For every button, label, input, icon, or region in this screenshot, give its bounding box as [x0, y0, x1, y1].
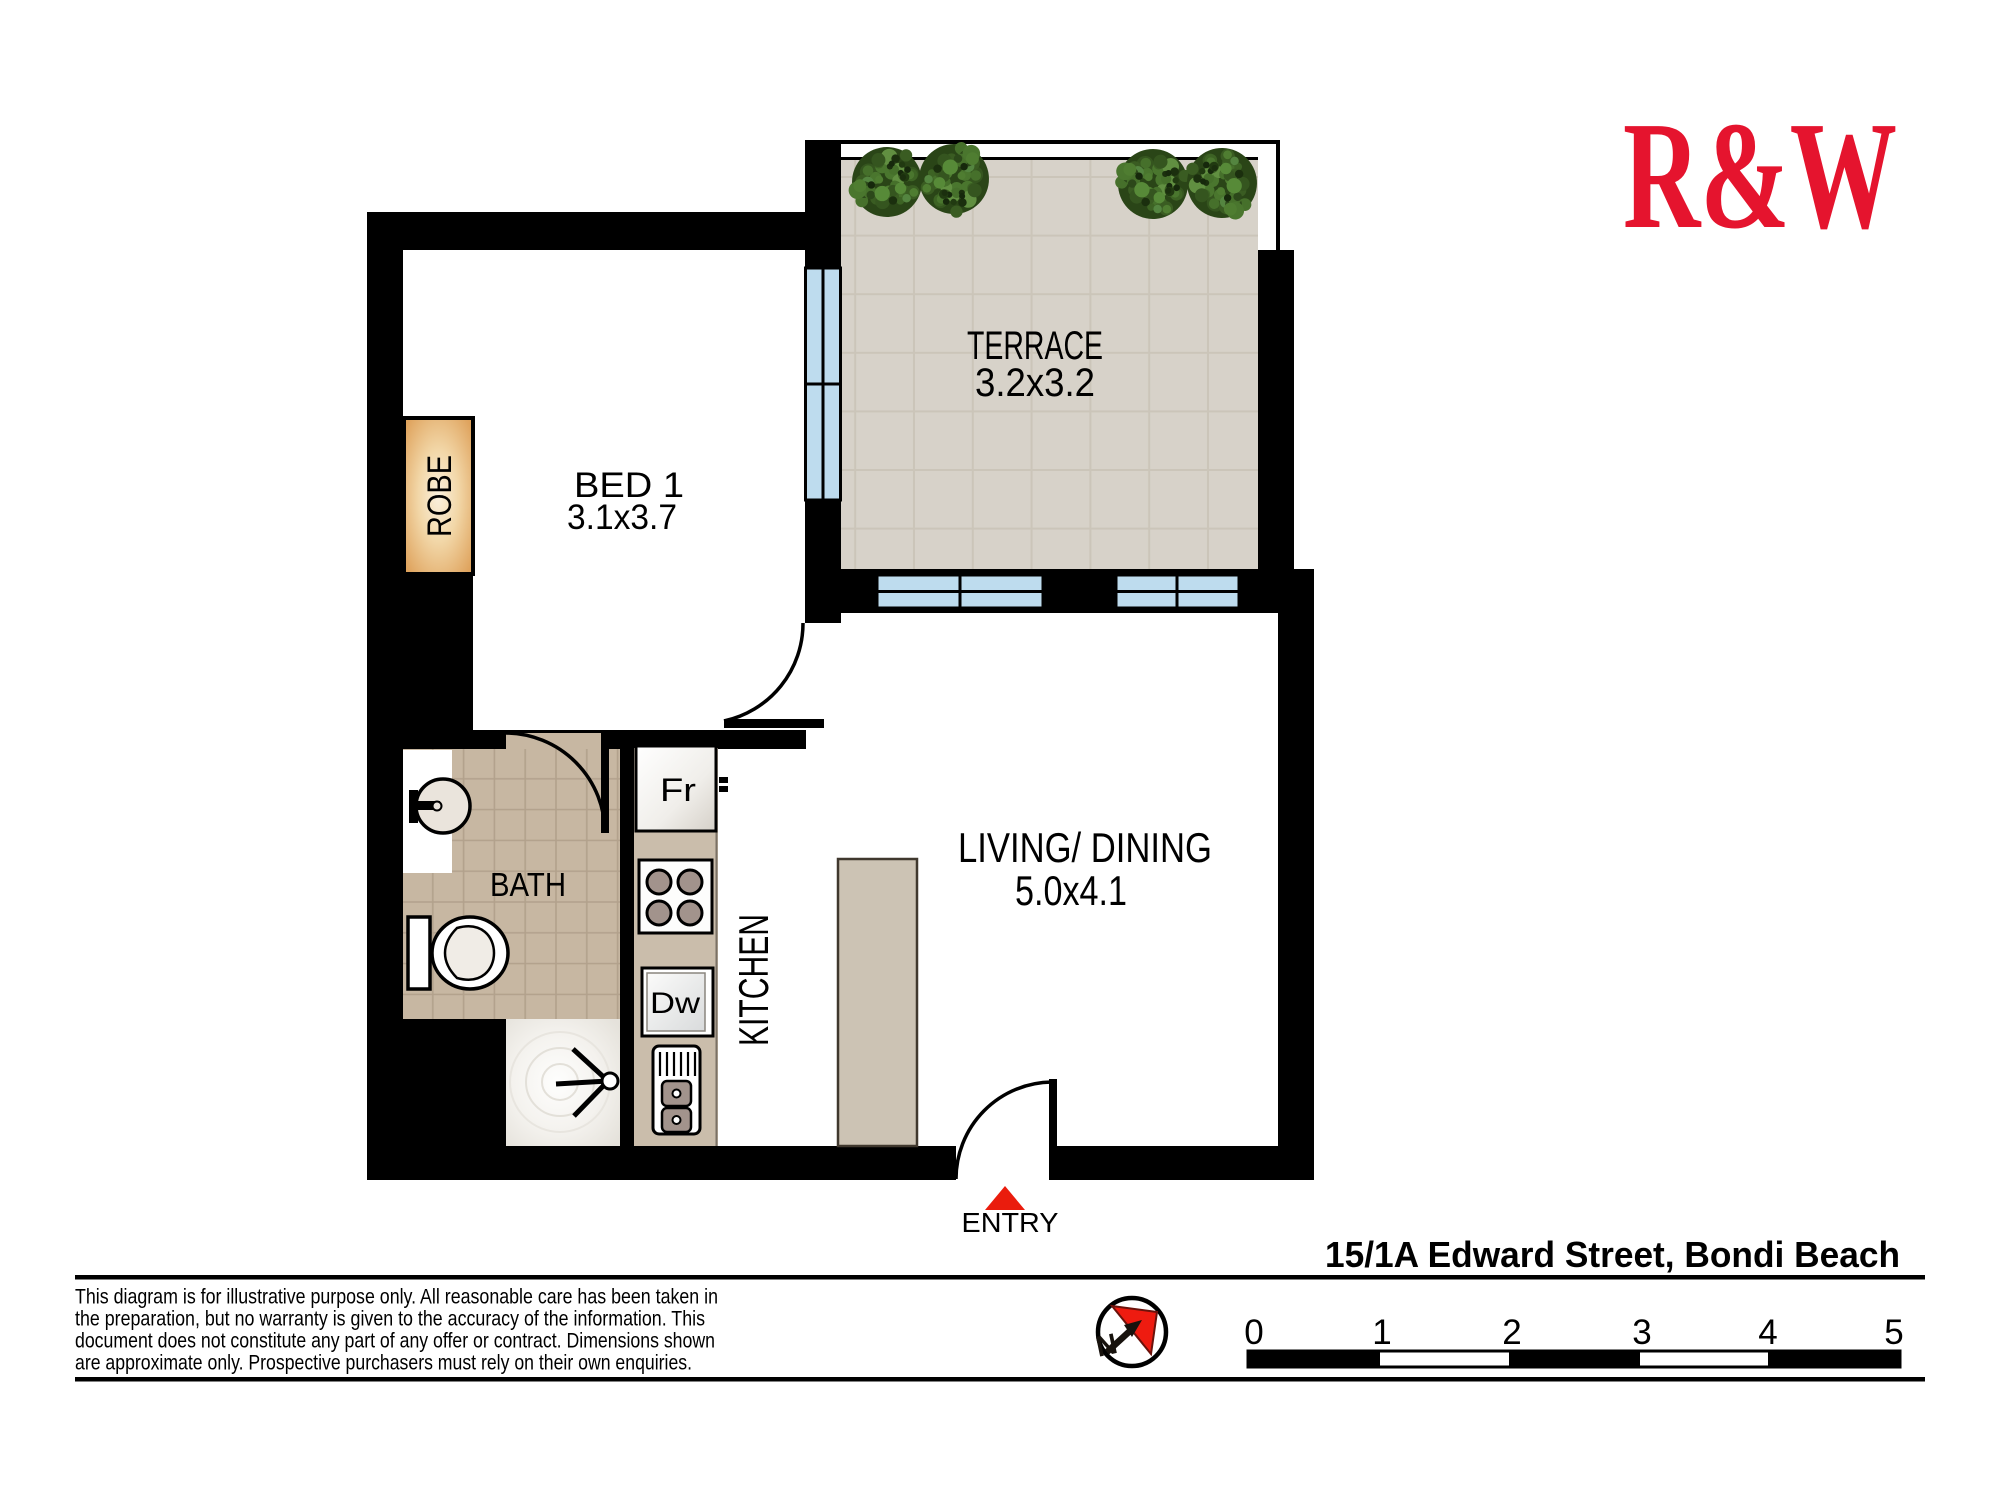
svg-text:the preparation, but no warran: the preparation, but no warranty is give…: [75, 1307, 705, 1331]
svg-text:3.1x3.7: 3.1x3.7: [567, 498, 677, 537]
svg-text:LIVING/ DINING: LIVING/ DINING: [958, 824, 1212, 871]
svg-text:R&W: R&W: [1623, 91, 1897, 261]
svg-text:document does not constitute a: document does not constitute any part of…: [75, 1329, 715, 1353]
svg-text:ROBE: ROBE: [421, 455, 459, 537]
svg-text:4: 4: [1758, 1313, 1777, 1352]
svg-text:ENTRY: ENTRY: [962, 1207, 1059, 1238]
svg-text:Dw: Dw: [650, 987, 700, 1020]
svg-text:1: 1: [1372, 1313, 1391, 1352]
svg-text:BATH: BATH: [490, 866, 566, 903]
svg-text:KITCHEN: KITCHEN: [730, 914, 777, 1046]
svg-text:This diagram is for illustrati: This diagram is for illustrative purpose…: [75, 1285, 718, 1309]
svg-text:15/1A Edward Street, Bondi Bea: 15/1A Edward Street, Bondi Beach: [1325, 1234, 1900, 1275]
svg-text:5: 5: [1884, 1313, 1903, 1352]
svg-text:are approximate only. Prospect: are approximate only. Prospective purcha…: [75, 1351, 692, 1375]
svg-text:2: 2: [1502, 1313, 1521, 1352]
svg-text:Fr: Fr: [660, 772, 696, 808]
svg-text:3: 3: [1632, 1313, 1651, 1352]
svg-text:0: 0: [1244, 1313, 1263, 1352]
svg-text:5.0x4.1: 5.0x4.1: [1015, 867, 1127, 914]
svg-text:3.2x3.2: 3.2x3.2: [975, 361, 1095, 405]
